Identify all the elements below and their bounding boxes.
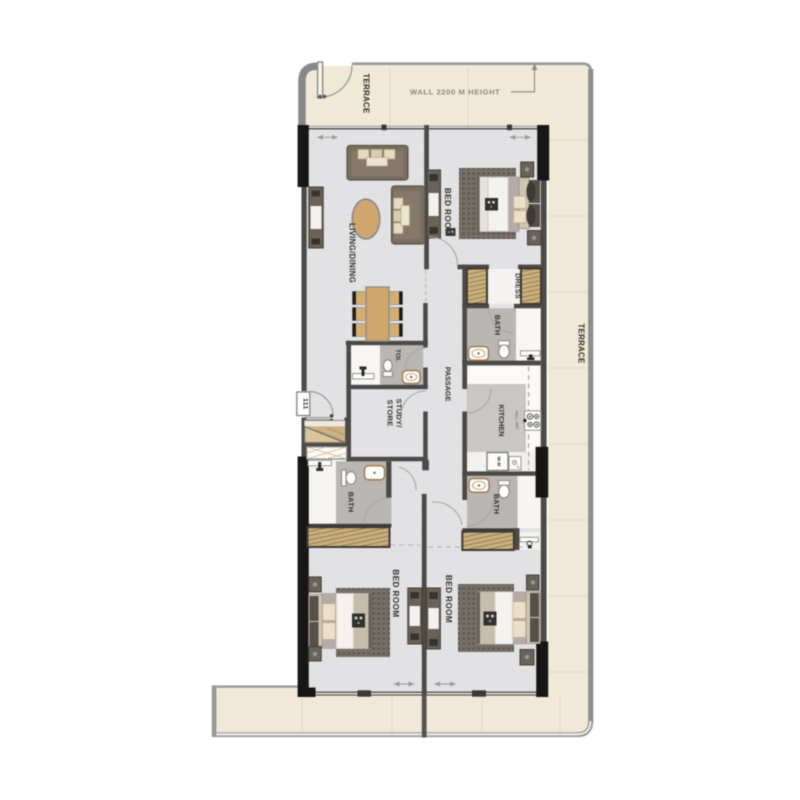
- svg-text:DRESS: DRESS: [514, 273, 523, 299]
- svg-text:TERRACE: TERRACE: [577, 323, 586, 364]
- svg-text:WALL UNIT: WALL UNIT: [515, 411, 519, 429]
- svg-text:BED ROOM: BED ROOM: [391, 569, 400, 617]
- svg-text:W.M: W.M: [496, 457, 502, 467]
- svg-text:LIVING/DINING: LIVING/DINING: [348, 223, 357, 283]
- svg-text:BATH: BATH: [347, 492, 356, 513]
- svg-text:WALL 2200 M HEIGHT: WALL 2200 M HEIGHT: [410, 88, 500, 97]
- svg-text:BATH: BATH: [492, 494, 501, 515]
- svg-text:BED ROOM: BED ROOM: [443, 188, 452, 236]
- svg-text:TERRACE: TERRACE: [362, 73, 371, 114]
- svg-text:BATH: BATH: [493, 315, 502, 336]
- svg-text:BED ROOM: BED ROOM: [444, 575, 453, 623]
- svg-text:KITCHEN: KITCHEN: [497, 405, 506, 437]
- svg-text:PASSAGE: PASSAGE: [443, 367, 452, 402]
- svg-text:111: 111: [302, 398, 309, 409]
- svg-text:STUDY/STORE: STUDY/STORE: [386, 398, 404, 428]
- svg-text:TOI.: TOI.: [394, 349, 401, 362]
